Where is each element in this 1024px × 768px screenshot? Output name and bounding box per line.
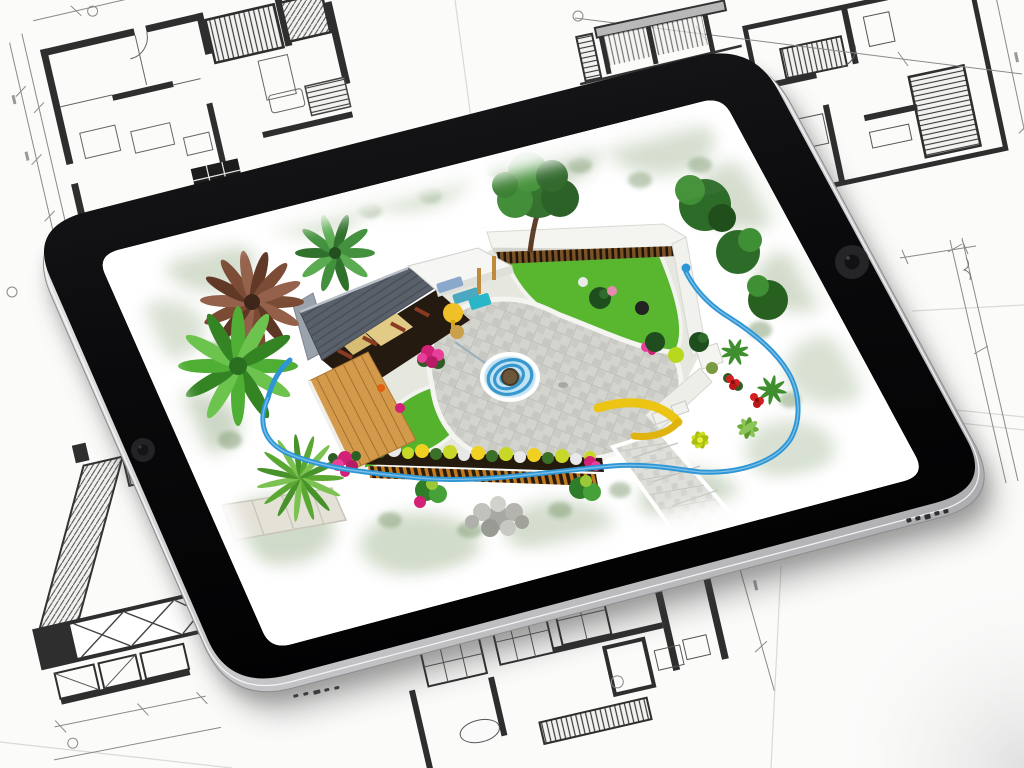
camera-left	[131, 438, 155, 462]
orange-flower	[377, 384, 385, 392]
magenta-flower	[395, 403, 405, 413]
scene-root	[0, 0, 1024, 768]
camera-right	[835, 245, 869, 279]
paper-corner-shade	[824, 568, 1024, 768]
tablet-on-blueprints-illustration	[0, 0, 1024, 768]
